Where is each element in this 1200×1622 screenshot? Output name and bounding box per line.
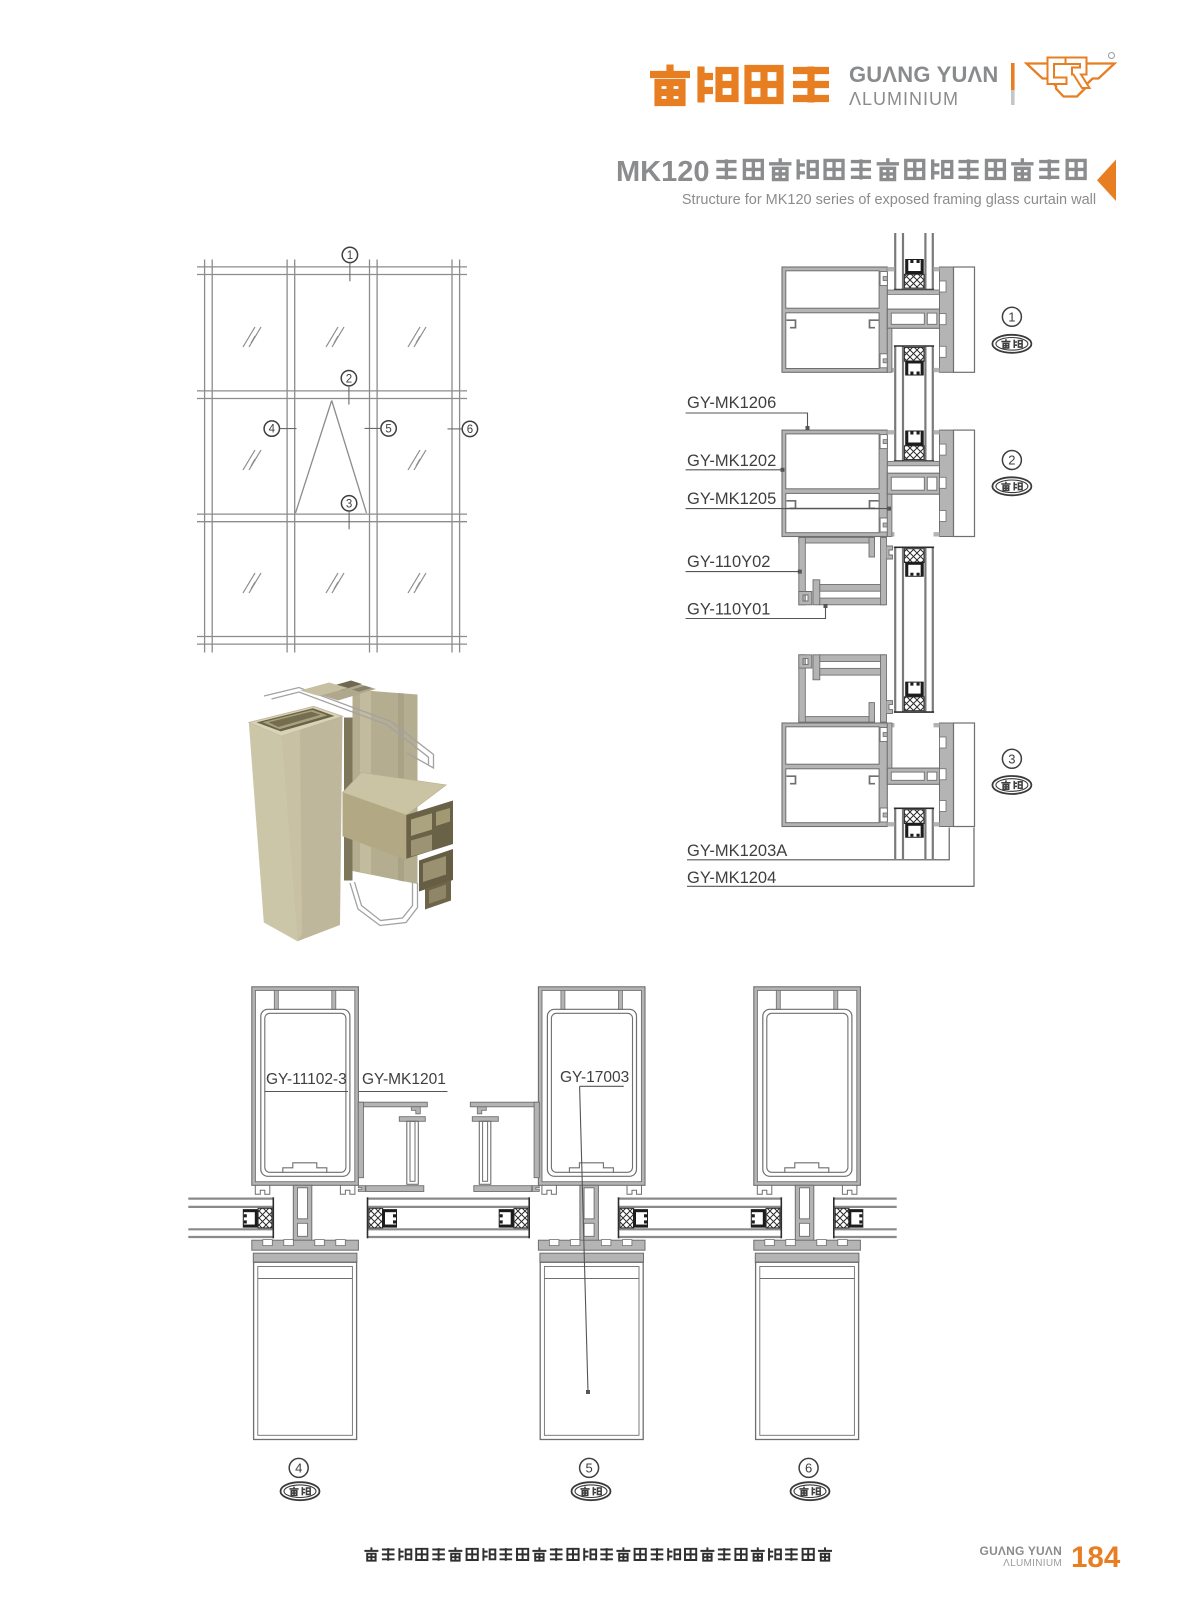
svg-text:GY-MK1202: GY-MK1202 xyxy=(687,452,776,470)
svg-text:ΛLUMINIUM: ΛLUMINIUM xyxy=(849,89,959,109)
svg-text:6: 6 xyxy=(805,1461,812,1476)
svg-text:GY-MK1204: GY-MK1204 xyxy=(687,869,776,887)
svg-text:3: 3 xyxy=(1008,751,1015,766)
svg-text:MK120: MK120 xyxy=(616,156,710,188)
svg-text:184: 184 xyxy=(1071,1541,1121,1574)
svg-text:GY-110Y01: GY-110Y01 xyxy=(687,601,770,619)
svg-text:GY-11102-3: GY-11102-3 xyxy=(266,1071,347,1088)
svg-text:3: 3 xyxy=(346,498,352,510)
svg-text:2: 2 xyxy=(346,373,352,385)
svg-text:5: 5 xyxy=(585,1461,592,1476)
svg-text:6: 6 xyxy=(467,424,473,436)
svg-text:GY-MK1201: GY-MK1201 xyxy=(362,1071,446,1088)
svg-text:GY-17003: GY-17003 xyxy=(560,1069,629,1086)
svg-text:2: 2 xyxy=(1008,453,1015,468)
svg-text:GUΛNG YUΛN: GUΛNG YUΛN xyxy=(980,1544,1062,1558)
svg-text:1: 1 xyxy=(1008,309,1015,324)
svg-text:4: 4 xyxy=(295,1461,302,1476)
svg-text:GY-MK1206: GY-MK1206 xyxy=(687,394,776,412)
svg-text:5: 5 xyxy=(385,424,391,436)
svg-text:ΛLUMINIUM: ΛLUMINIUM xyxy=(1003,1558,1062,1569)
svg-text:GUΛNG YUΛN: GUΛNG YUΛN xyxy=(849,62,999,87)
svg-text:GY-110Y02: GY-110Y02 xyxy=(687,553,770,571)
svg-text:GY-MK1203A: GY-MK1203A xyxy=(687,842,787,860)
svg-text:GY-MK1205: GY-MK1205 xyxy=(687,490,776,508)
svg-text:Structure for MK120 series of: Structure for MK120 series of exposed fr… xyxy=(682,192,1096,208)
svg-text:1: 1 xyxy=(347,250,353,262)
svg-text:4: 4 xyxy=(269,424,276,436)
